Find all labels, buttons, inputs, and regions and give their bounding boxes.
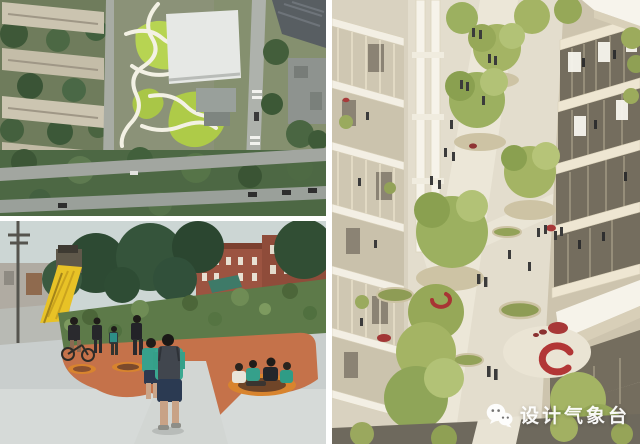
aerial-site-illustration: [0, 0, 326, 216]
playground-plaza-photo: [0, 221, 326, 444]
watermark-text: 设计气象台: [520, 401, 630, 428]
aerial-bottom-roads: [0, 147, 326, 216]
photo-collage: 设计气象台: [0, 0, 640, 444]
architectural-model-photo: [332, 0, 640, 444]
aerial-site-photo: [0, 0, 326, 216]
watermark: 设计气象台: [486, 401, 630, 428]
playground-illustration: [0, 221, 326, 444]
model-illustration: [332, 0, 640, 444]
wechat-icon: [486, 402, 513, 428]
